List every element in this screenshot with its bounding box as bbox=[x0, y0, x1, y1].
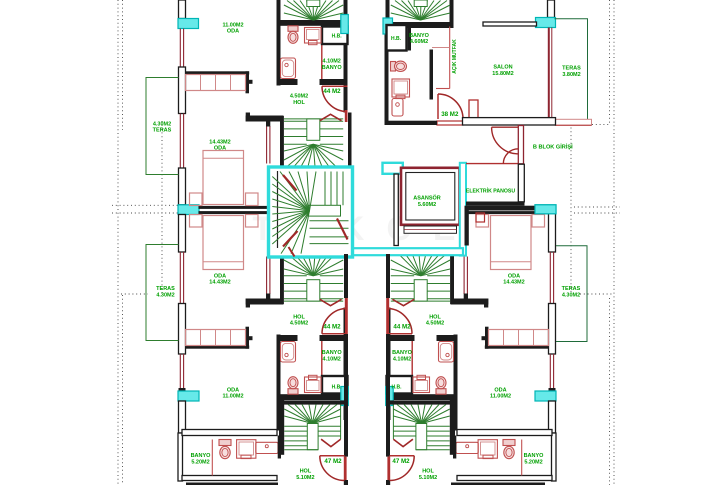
svg-text:TERAS: TERAS bbox=[562, 286, 581, 292]
svg-text:BANYO: BANYO bbox=[322, 65, 343, 71]
svg-text:4.30M2: 4.30M2 bbox=[562, 293, 580, 299]
svg-text:HOL: HOL bbox=[300, 469, 312, 475]
svg-text:BANYO: BANYO bbox=[392, 350, 413, 356]
svg-text:TERAS: TERAS bbox=[562, 66, 581, 72]
svg-text:5.20M2: 5.20M2 bbox=[524, 460, 542, 466]
svg-text:BANYO: BANYO bbox=[191, 453, 212, 459]
svg-text:ELEKTRİK PANOSU: ELEKTRİK PANOSU bbox=[466, 188, 515, 195]
svg-text:4.10M2: 4.10M2 bbox=[323, 357, 341, 363]
svg-text:H.B.: H.B. bbox=[391, 36, 402, 42]
svg-text:44 M2: 44 M2 bbox=[393, 324, 411, 331]
svg-text:5.10M2: 5.10M2 bbox=[296, 475, 314, 481]
svg-text:HOL: HOL bbox=[293, 100, 305, 106]
svg-text:TERAS: TERAS bbox=[153, 128, 172, 134]
svg-text:ODA: ODA bbox=[227, 29, 239, 35]
svg-text:5.10M2: 5.10M2 bbox=[419, 475, 437, 481]
svg-text:11.00M2: 11.00M2 bbox=[490, 394, 511, 400]
svg-text:4.50M2: 4.50M2 bbox=[290, 94, 308, 100]
svg-text:4.50M2: 4.50M2 bbox=[426, 321, 444, 327]
svg-text:ASANSÖR: ASANSÖR bbox=[413, 195, 441, 202]
svg-text:44 M2: 44 M2 bbox=[323, 324, 341, 331]
svg-text:4.60M2: 4.60M2 bbox=[410, 39, 428, 45]
svg-text:47 M2: 47 M2 bbox=[392, 458, 410, 465]
svg-text:14.43M2: 14.43M2 bbox=[209, 280, 230, 286]
svg-text:44 M2: 44 M2 bbox=[323, 88, 341, 95]
svg-text:BANYO: BANYO bbox=[524, 453, 545, 459]
svg-text:11.00M2: 11.00M2 bbox=[222, 394, 243, 400]
svg-text:SALON: SALON bbox=[493, 65, 512, 71]
svg-text:4.10M2: 4.10M2 bbox=[323, 59, 341, 65]
svg-text:47 M2: 47 M2 bbox=[324, 458, 342, 465]
svg-text:4.50M2: 4.50M2 bbox=[290, 321, 308, 327]
svg-text:15.80M2: 15.80M2 bbox=[492, 71, 513, 77]
svg-text:B BLOK GİRİŞİ: B BLOK GİRİŞİ bbox=[533, 144, 573, 151]
svg-text:14.43M2: 14.43M2 bbox=[503, 280, 524, 286]
svg-text:BANYO: BANYO bbox=[409, 33, 430, 39]
svg-text:3.80M2: 3.80M2 bbox=[562, 72, 580, 78]
svg-text:H.B.: H.B. bbox=[332, 34, 343, 40]
svg-text:BANYO: BANYO bbox=[322, 350, 343, 356]
svg-text:TERAS: TERAS bbox=[156, 286, 175, 292]
svg-text:H.B.: H.B. bbox=[392, 385, 403, 391]
svg-text:HOL: HOL bbox=[422, 469, 434, 475]
svg-text:ODA: ODA bbox=[214, 146, 226, 152]
svg-text:38 M2: 38 M2 bbox=[441, 111, 459, 118]
svg-text:4.10M2: 4.10M2 bbox=[393, 357, 411, 363]
svg-text:4.30M2: 4.30M2 bbox=[156, 293, 174, 299]
svg-text:5.20M2: 5.20M2 bbox=[191, 460, 209, 466]
svg-text:AÇIK MUTFAK: AÇIK MUTFAK bbox=[452, 39, 458, 74]
svg-text:H.B.: H.B. bbox=[332, 385, 343, 391]
svg-text:5.60M2: 5.60M2 bbox=[418, 202, 436, 208]
